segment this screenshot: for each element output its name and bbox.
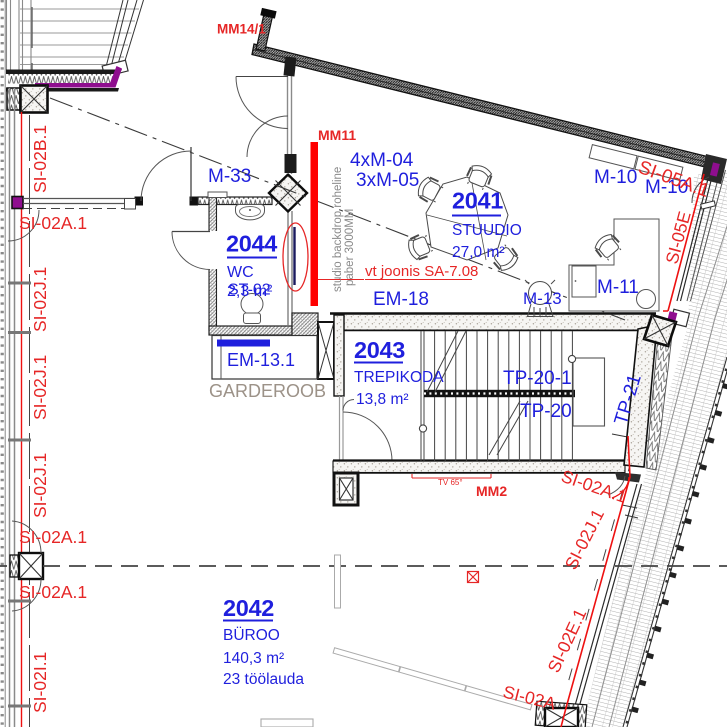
svg-text:SI-02J.1: SI-02J.1 — [30, 355, 50, 420]
svg-text:vt joonis SA-7.08: vt joonis SA-7.08 — [365, 263, 478, 280]
svg-text:ST-02: ST-02 — [228, 282, 271, 299]
svg-text:SI-02B.1: SI-02B.1 — [30, 125, 50, 193]
svg-text:SI-02I.1: SI-02I.1 — [30, 652, 50, 713]
svg-text:TP-20: TP-20 — [520, 401, 572, 422]
svg-text:EM-18: EM-18 — [373, 289, 429, 310]
svg-text:TP-20-1: TP-20-1 — [503, 368, 572, 389]
svg-text:STUUDIO: STUUDIO — [452, 222, 522, 239]
svg-text:MM14/1: MM14/1 — [217, 22, 266, 37]
svg-text:studio backdrop roheline: studio backdrop roheline — [332, 167, 344, 292]
svg-text:2041: 2041 — [452, 188, 503, 214]
svg-text:3xM-05: 3xM-05 — [356, 170, 419, 191]
svg-text:SI-02A.1: SI-02A.1 — [19, 527, 87, 547]
svg-text:EM-13.1: EM-13.1 — [227, 350, 295, 370]
svg-text:GARDEROOB: GARDEROOB — [209, 381, 326, 401]
svg-text:MM11: MM11 — [318, 127, 356, 143]
svg-text:2044: 2044 — [226, 231, 277, 257]
svg-text:13,8 m²: 13,8 m² — [356, 391, 409, 408]
svg-text:M-11: M-11 — [597, 277, 639, 298]
svg-text:M-33: M-33 — [208, 166, 251, 187]
svg-text:M-10: M-10 — [594, 167, 637, 188]
svg-text:paber 3000MM: paber 3000MM — [344, 209, 356, 286]
svg-text:M-13: M-13 — [523, 289, 562, 308]
svg-text:27,0 m²: 27,0 m² — [452, 244, 505, 261]
svg-text:SI-02A.1: SI-02A.1 — [19, 582, 87, 602]
svg-text:140,3 m²: 140,3 m² — [223, 650, 284, 667]
svg-text:4xM-04: 4xM-04 — [350, 150, 414, 171]
svg-text:WC: WC — [227, 264, 254, 281]
svg-text:2043: 2043 — [354, 337, 405, 363]
svg-text:BÜROO: BÜROO — [223, 626, 280, 644]
svg-text:23 töölauda: 23 töölauda — [223, 671, 304, 688]
svg-text:TV 65°: TV 65° — [438, 478, 463, 487]
svg-text:TREPIKODA: TREPIKODA — [354, 369, 444, 386]
svg-text:2042: 2042 — [223, 595, 274, 621]
svg-text:SI-02J.1: SI-02J.1 — [30, 267, 50, 332]
svg-text:SI-02A.1: SI-02A.1 — [19, 213, 87, 233]
svg-text:MM2: MM2 — [476, 483, 507, 499]
svg-text:SI-02J.1: SI-02J.1 — [30, 453, 50, 518]
